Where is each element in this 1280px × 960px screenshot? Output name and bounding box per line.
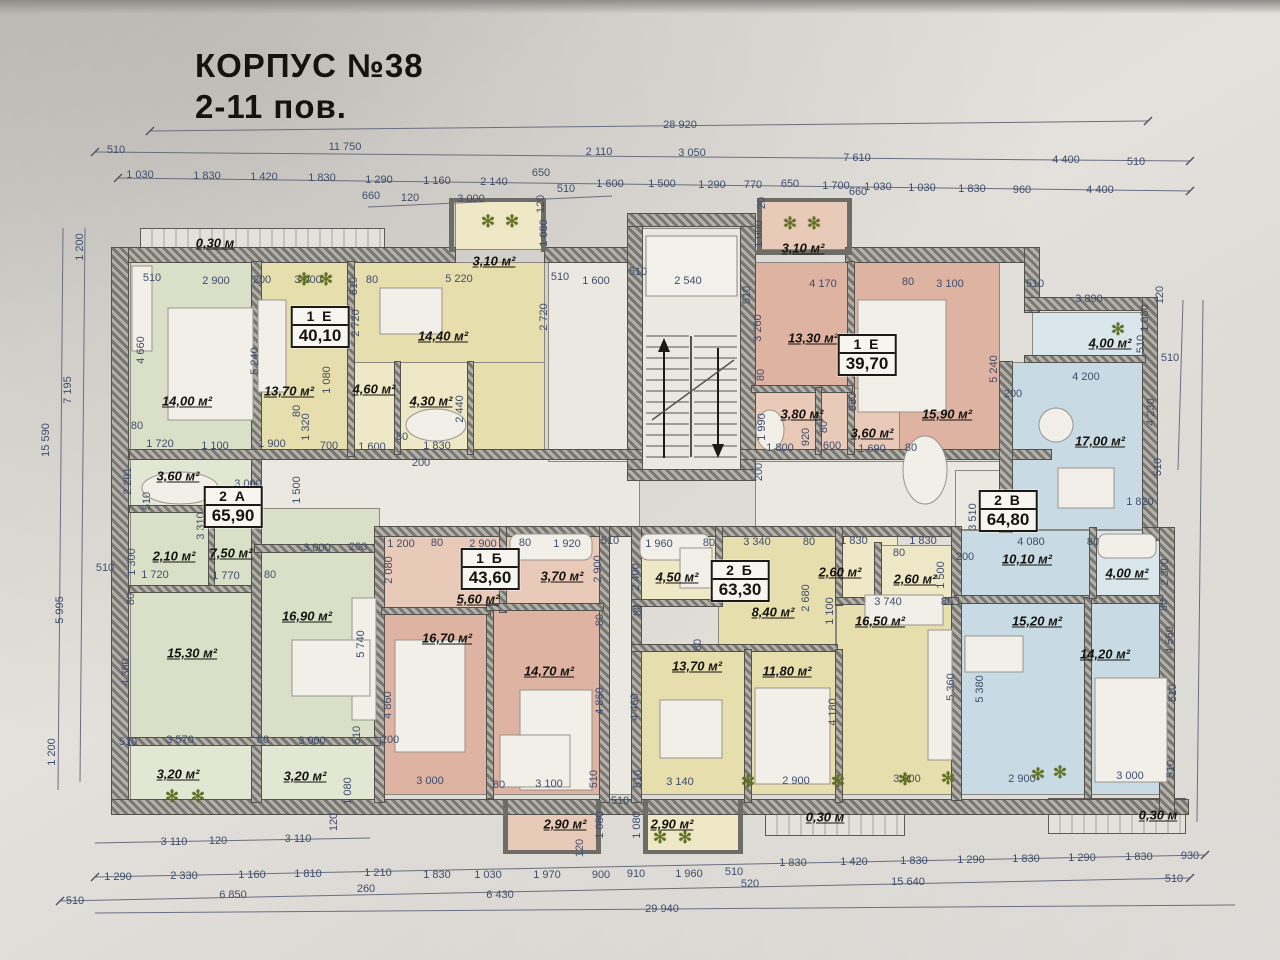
dim-label: 510 <box>143 272 161 284</box>
dim-label: 120 <box>328 813 340 831</box>
apartment-id: 1 Б <box>463 550 518 568</box>
dim-label: 1 420 <box>250 171 278 183</box>
apartment-area: 63,30 <box>713 580 768 600</box>
room-area-label: 5,60 м² <box>457 592 500 607</box>
room-area-label: 4,00 м² <box>1106 566 1149 581</box>
room-area-label: 13,30 м² <box>788 331 838 346</box>
dim-label: 1 830 <box>308 172 336 184</box>
dim-label: 4 400 <box>1086 184 1114 196</box>
dim-label: 1 290 <box>957 854 985 866</box>
dim-label: 4 170 <box>809 278 837 290</box>
dim-label: 80 <box>1087 536 1099 548</box>
dim-label: 1 830 <box>423 440 451 452</box>
dim-label: 1 830 <box>779 857 807 869</box>
plant-icon: ✻ <box>898 770 912 790</box>
dim-label: 510 <box>1165 760 1177 778</box>
dim-label: 1 830 <box>909 535 937 547</box>
dim-label: 660 <box>849 186 867 198</box>
dim-label: 6 430 <box>486 889 514 901</box>
plant-icon: ✻ <box>1031 765 1045 785</box>
room-area-label: 3,60 м² <box>157 469 200 484</box>
dim-label: 1 080 <box>631 811 643 839</box>
plant-icon: ✻ <box>831 772 845 792</box>
dim-label: 80 <box>431 537 443 549</box>
dim-label: 1 210 <box>364 867 392 879</box>
dim-label: 200 <box>753 463 765 481</box>
apartment-id: 1 Е <box>293 308 348 326</box>
dim-label: 80 <box>941 596 953 608</box>
dim-label: 2 140 <box>480 176 508 188</box>
dim-label: 4 660 <box>135 336 147 364</box>
dim-label: 3 740 <box>874 596 902 608</box>
dim-label: 3 050 <box>678 147 706 159</box>
dim-label: 1 200 <box>46 738 58 766</box>
room-area-label: 3,60 м² <box>851 426 894 441</box>
dim-label: 2 300 <box>1159 558 1171 586</box>
dim-label: 80 <box>818 421 830 433</box>
dim-label: 2 900 <box>202 275 230 287</box>
room-area-label: 14,00 м² <box>162 394 212 409</box>
room-area-label: 2,60 м² <box>894 572 937 587</box>
room-area-label: 0,30 м <box>196 236 235 251</box>
dim-label: 3 000 <box>416 775 444 787</box>
dim-label: 15 640 <box>891 876 925 888</box>
dim-label: 2 540 <box>674 275 702 287</box>
plant-icon: ✻ <box>653 828 667 848</box>
dim-label: 1 830 <box>900 855 928 867</box>
dim-label: 80 <box>703 537 715 549</box>
room-area-label: 15,90 м² <box>922 407 972 422</box>
dim-label: 4 180 <box>827 698 839 726</box>
dim-label: 4 400 <box>1052 154 1080 166</box>
plant-icon: ✻ <box>319 270 333 290</box>
room-area-label: 14,20 м² <box>1080 647 1130 662</box>
dim-label: 1 100 <box>201 440 229 452</box>
room-area-label: 16,70 м² <box>422 631 472 646</box>
dim-label: 1 160 <box>423 175 451 187</box>
plant-icon: ✻ <box>297 270 311 290</box>
dim-label: 200 <box>412 457 430 469</box>
room-area-label: 3,80 м² <box>781 407 824 422</box>
dimension-line <box>150 121 1148 131</box>
dim-label: 510 <box>66 895 84 907</box>
room-area-label: 7,50 м² <box>210 546 253 561</box>
dim-label: 120 <box>535 195 547 213</box>
apartment-tag: 2 А65,90 <box>204 486 263 528</box>
dim-label: 3 510 <box>967 503 979 531</box>
dim-label: 510 <box>632 770 644 788</box>
plant-icon: ✻ <box>783 214 797 234</box>
dim-label: 80 <box>366 274 378 286</box>
dim-label: 510 <box>107 144 125 156</box>
dim-label: 1 290 <box>698 179 726 191</box>
dim-label: 510 <box>1152 458 1164 476</box>
dimension-line <box>58 228 63 790</box>
dim-label: 3 340 <box>743 536 771 548</box>
dim-label: 1 030 <box>126 169 154 181</box>
dim-label: 510 <box>741 286 753 304</box>
dim-label: 4 460 <box>629 693 641 721</box>
dim-label: 2 201 <box>122 467 134 495</box>
plant-icon: ✻ <box>481 212 495 232</box>
dim-label: 1 830 <box>840 535 868 547</box>
dim-label: 1 030 <box>908 182 936 194</box>
dim-label: 1 290 <box>1068 852 1096 864</box>
dim-label: 3 000 <box>298 735 326 747</box>
dim-label: 510 <box>119 736 137 748</box>
dim-label: 29 940 <box>645 903 679 915</box>
dim-label: 120 <box>209 835 227 847</box>
dimension-line <box>1197 300 1203 822</box>
room-area-label: 2,10 м² <box>153 549 196 564</box>
dim-label: 80 <box>755 369 767 381</box>
dim-label: 900 <box>592 869 610 881</box>
plant-icon: ✻ <box>191 787 205 807</box>
dim-label: 770 <box>744 179 762 191</box>
furniture <box>660 700 722 758</box>
dim-label: 80 <box>493 779 505 791</box>
furniture <box>395 640 465 752</box>
dim-label: 2 080 <box>383 556 395 584</box>
dim-label: 1 080 <box>538 219 550 247</box>
stair-arrow-up-head <box>658 338 670 352</box>
dim-label: 260 <box>357 883 375 895</box>
furniture <box>1058 468 1114 508</box>
room-area-label: 0,30 м <box>806 810 845 825</box>
dim-label: 3 110 <box>285 833 312 845</box>
dim-label: 1 810 <box>294 868 322 880</box>
dim-label: 1 030 <box>864 181 892 193</box>
dim-label: 510 <box>348 277 360 295</box>
dim-label: 80 <box>125 593 137 605</box>
dim-label: 5 240 <box>988 355 1000 383</box>
dim-label: 3 000 <box>1116 770 1144 782</box>
dim-label: 520 <box>741 878 759 890</box>
dim-label: 510 <box>1135 335 1147 353</box>
dim-label: 1 820 <box>1126 496 1154 508</box>
dim-label: 1 920 <box>553 538 581 550</box>
room-area-label: 2,60 м² <box>819 565 862 580</box>
plant-icon: ✻ <box>741 772 755 792</box>
dim-label: 510 <box>141 492 153 510</box>
dim-label: 7 195 <box>62 376 74 404</box>
floor-plan: КОРПУС №38 2-11 пов. 28 92051011 7502 11… <box>0 0 1280 960</box>
dim-label: 1 770 <box>212 570 240 582</box>
room-area-label: 15,30 м² <box>167 646 217 661</box>
dim-label: 1 900 <box>258 438 286 450</box>
room-area-label: 4,30 м² <box>410 394 453 409</box>
room-area-label: 14,40 м² <box>418 329 468 344</box>
apartment-area: 65,90 <box>206 506 261 526</box>
dim-label: 3 110 <box>161 836 188 848</box>
dim-label: 510 <box>611 795 629 807</box>
dim-label: 1 720 <box>146 438 174 450</box>
plant-icon: ✻ <box>807 214 821 234</box>
dim-label: 1 080 <box>1139 304 1151 332</box>
dim-label: 1 960 <box>645 538 673 550</box>
dim-label: 200 <box>253 274 271 286</box>
dim-label: 1 100 <box>824 597 836 625</box>
dim-label: 1 300 <box>126 548 138 576</box>
room-area-label: 3,70 м² <box>541 569 584 584</box>
dim-label: 960 <box>1013 184 1031 196</box>
furniture <box>1095 678 1167 782</box>
apartment-id: 2 Б <box>713 562 768 580</box>
dim-label: 1 200 <box>74 233 86 261</box>
apartment-area: 64,80 <box>981 510 1036 530</box>
apartment-id: 2 А <box>206 488 261 506</box>
dim-label: 1 830 <box>1125 851 1153 863</box>
dim-label: 510 <box>588 770 600 788</box>
dim-label: 6 850 <box>219 889 247 901</box>
dim-label: 4 230 <box>1145 398 1157 426</box>
dim-label: 1 600 <box>582 275 610 287</box>
dim-label: 120 <box>1154 286 1166 304</box>
dim-label: 1 290 <box>365 174 393 186</box>
dim-label: 3 890 <box>1075 293 1103 305</box>
dim-label: 1 690 <box>858 443 886 455</box>
dim-label: 1 700 <box>822 180 850 192</box>
dim-label: 5 380 <box>974 675 986 703</box>
dim-label: 510 <box>1026 278 1044 290</box>
dim-label: 3 140 <box>666 776 694 788</box>
room-area-label: 3,10 м² <box>473 254 516 269</box>
room-area-label: 3,20 м² <box>157 767 200 782</box>
dim-label: 1 500 <box>648 178 676 190</box>
dim-label: 4 200 <box>1072 371 1100 383</box>
dim-label: 1 500 <box>291 476 303 504</box>
apartment-area: 40,10 <box>293 326 348 346</box>
dim-label: 2 900 <box>592 555 604 583</box>
dim-label: 5 995 <box>54 596 66 624</box>
dim-label: 1 960 <box>675 868 703 880</box>
dim-label: 80 <box>803 536 815 548</box>
dim-label: 200 <box>1004 388 1022 400</box>
dim-label: 600 <box>823 440 841 452</box>
dim-label: 80 <box>396 431 408 443</box>
dim-label: 120 <box>574 839 586 857</box>
dim-label: 7 610 <box>843 152 871 164</box>
dim-label: 2 720 <box>538 303 550 331</box>
dim-label: 3 260 <box>752 314 764 342</box>
dim-label: 2 900 <box>782 775 810 787</box>
dim-label: 1 080 <box>753 220 765 248</box>
stair-arrow-down-head <box>712 444 724 458</box>
room-area-label: 13,70 м² <box>672 659 722 674</box>
dim-label: 200 <box>381 734 399 746</box>
dim-label: 3 100 <box>936 278 964 290</box>
furniture <box>258 300 286 392</box>
dim-label: 510 <box>557 183 575 195</box>
plant-icon: ✻ <box>941 769 955 789</box>
room-area-label: 11,80 м² <box>762 664 811 679</box>
dim-label: 1 080 <box>594 811 606 839</box>
dim-label: 1 600 <box>596 178 624 190</box>
dim-label: 510 <box>551 271 569 283</box>
dimension-line <box>1178 300 1183 470</box>
dim-label: 1 080 <box>342 777 354 805</box>
room-area-label: 16,90 м² <box>282 609 332 624</box>
dim-label: 2 680 <box>800 584 812 612</box>
room-area-label: 4,50 м² <box>656 570 699 585</box>
room-area-label: 14,70 м² <box>524 664 574 679</box>
dim-label: 2 330 <box>170 870 198 882</box>
dim-label: 3 000 <box>303 542 331 554</box>
dim-label: 510 <box>1165 873 1183 885</box>
dim-label: 1 290 <box>104 871 132 883</box>
dim-label: 1 990 <box>756 413 768 441</box>
plant-icon: ✻ <box>165 787 179 807</box>
room-area-label: 15,20 м² <box>1012 614 1062 629</box>
dim-label: 3 000 <box>457 193 485 205</box>
dim-label: 5 220 <box>445 273 473 285</box>
furniture <box>1098 534 1156 558</box>
dim-label: 80 <box>692 639 704 651</box>
dim-label: 5 360 <box>945 673 957 701</box>
apartment-tag: 2 Б63,30 <box>711 560 770 602</box>
room-area-label: 10,10 м² <box>1002 552 1052 567</box>
dim-label: 80 <box>264 569 276 581</box>
apartment-area: 39,70 <box>840 354 895 374</box>
dim-label: 2 440 <box>454 395 466 423</box>
dim-label: 1 600 <box>358 441 386 453</box>
stair-landing <box>646 236 737 296</box>
dim-label: 1 830 <box>1012 853 1040 865</box>
dim-label: 1 970 <box>533 869 561 881</box>
room-area-label: 4,60 м² <box>353 382 396 397</box>
apartment-id: 1 Е <box>840 336 895 354</box>
dim-label: 920 <box>800 428 812 446</box>
dim-label: 5 740 <box>355 630 367 658</box>
dim-label: 1 830 <box>423 869 451 881</box>
dim-label: 1 830 <box>193 170 221 182</box>
dim-label: 3 570 <box>166 734 194 746</box>
dim-label: 980 <box>847 393 859 411</box>
apartment-id: 2 В <box>981 492 1036 510</box>
room-area-label: 0,30 м <box>1139 808 1178 823</box>
furniture <box>965 636 1023 672</box>
dim-label: 1 500 <box>935 561 947 589</box>
dim-label: 510 <box>601 535 619 547</box>
plant-icon: ✻ <box>1053 763 1067 783</box>
dim-label: 1 200 <box>387 538 415 550</box>
dim-label: 4 560 <box>1164 626 1176 654</box>
dim-label: 4 860 <box>382 691 394 719</box>
room-area-label: 3,10 м² <box>782 241 825 256</box>
dim-label: 80 <box>893 547 905 559</box>
dim-label: 20 <box>756 197 768 209</box>
dim-label: 2 110 <box>586 146 613 158</box>
dim-label: 4 080 <box>1017 536 1045 548</box>
dim-label: 510 <box>96 562 114 574</box>
dim-label: 2 720 <box>350 309 362 337</box>
dimension-line <box>95 838 370 843</box>
dim-label: 650 <box>781 178 799 190</box>
dim-label: 80 <box>257 734 269 746</box>
dim-label: 80 <box>905 442 917 454</box>
dim-label: 510 <box>725 866 743 878</box>
dim-label: 510 <box>351 726 363 744</box>
dim-label: 3 100 <box>535 778 563 790</box>
apartment-tag: 2 В64,80 <box>979 490 1038 532</box>
room-area-label: 8,40 м² <box>752 605 795 620</box>
dimension-line <box>80 228 85 782</box>
apartment-tag: 1 Е40,10 <box>291 306 350 348</box>
dim-label: 510 <box>1167 684 1179 702</box>
dim-label: 1 030 <box>474 869 502 881</box>
dim-label: 1 800 <box>766 442 794 454</box>
room-area-label: 13,70 м² <box>264 384 314 399</box>
dim-label: 80 <box>902 276 914 288</box>
dim-label: 80 <box>594 614 606 626</box>
room-area-label: 16,50 м² <box>855 614 905 629</box>
dim-label: 2 400 <box>630 563 642 591</box>
dim-label: 930 <box>1181 850 1199 862</box>
dim-label: 910 <box>627 868 645 880</box>
furniture <box>1039 408 1073 442</box>
dim-label: 80 <box>1158 599 1170 611</box>
dim-label: 650 <box>532 167 550 179</box>
plant-icon: ✻ <box>678 828 692 848</box>
dim-label: 1 080 <box>321 366 333 394</box>
furniture <box>755 688 830 784</box>
dim-label: 1 420 <box>840 856 868 868</box>
dim-label: 80 <box>519 537 531 549</box>
dim-label: 11 750 <box>329 141 362 153</box>
room-area-label: 17,00 м² <box>1075 434 1125 449</box>
dim-label: 5 240 <box>249 347 261 375</box>
dim-label: 200 <box>956 551 974 563</box>
room-area-label: 2,90 м² <box>544 817 587 832</box>
dim-label: 700 <box>320 440 338 452</box>
dim-label: 4 860 <box>594 687 606 715</box>
dim-label: 80 <box>131 420 143 432</box>
plant-icon: ✻ <box>505 212 519 232</box>
dim-label: 80 <box>632 604 644 616</box>
dim-label: 1 160 <box>238 869 266 881</box>
apartment-tag: 1 Е39,70 <box>838 334 897 376</box>
furniture <box>380 288 442 334</box>
dim-label: 1 320 <box>300 413 312 441</box>
dim-label: 1 720 <box>141 569 169 581</box>
dim-label: 510 <box>1127 156 1145 168</box>
dim-label: 28 920 <box>663 119 697 131</box>
dim-label: 660 <box>362 190 380 202</box>
dim-label: 510 <box>629 266 647 278</box>
plant-icon: ✻ <box>1111 320 1125 340</box>
apartment-area: 43,60 <box>463 568 518 588</box>
dimension-line <box>95 152 1190 161</box>
dim-label: 1 830 <box>958 183 986 195</box>
dim-label: 15 590 <box>40 423 52 457</box>
room-area-label: 3,20 м² <box>284 769 327 784</box>
dim-label: 120 <box>401 192 419 204</box>
apartment-tag: 1 Б43,60 <box>461 548 520 590</box>
dim-label: 200 <box>349 541 367 553</box>
dim-label: 4 380 <box>120 658 132 686</box>
dim-label: 510 <box>1161 352 1179 364</box>
